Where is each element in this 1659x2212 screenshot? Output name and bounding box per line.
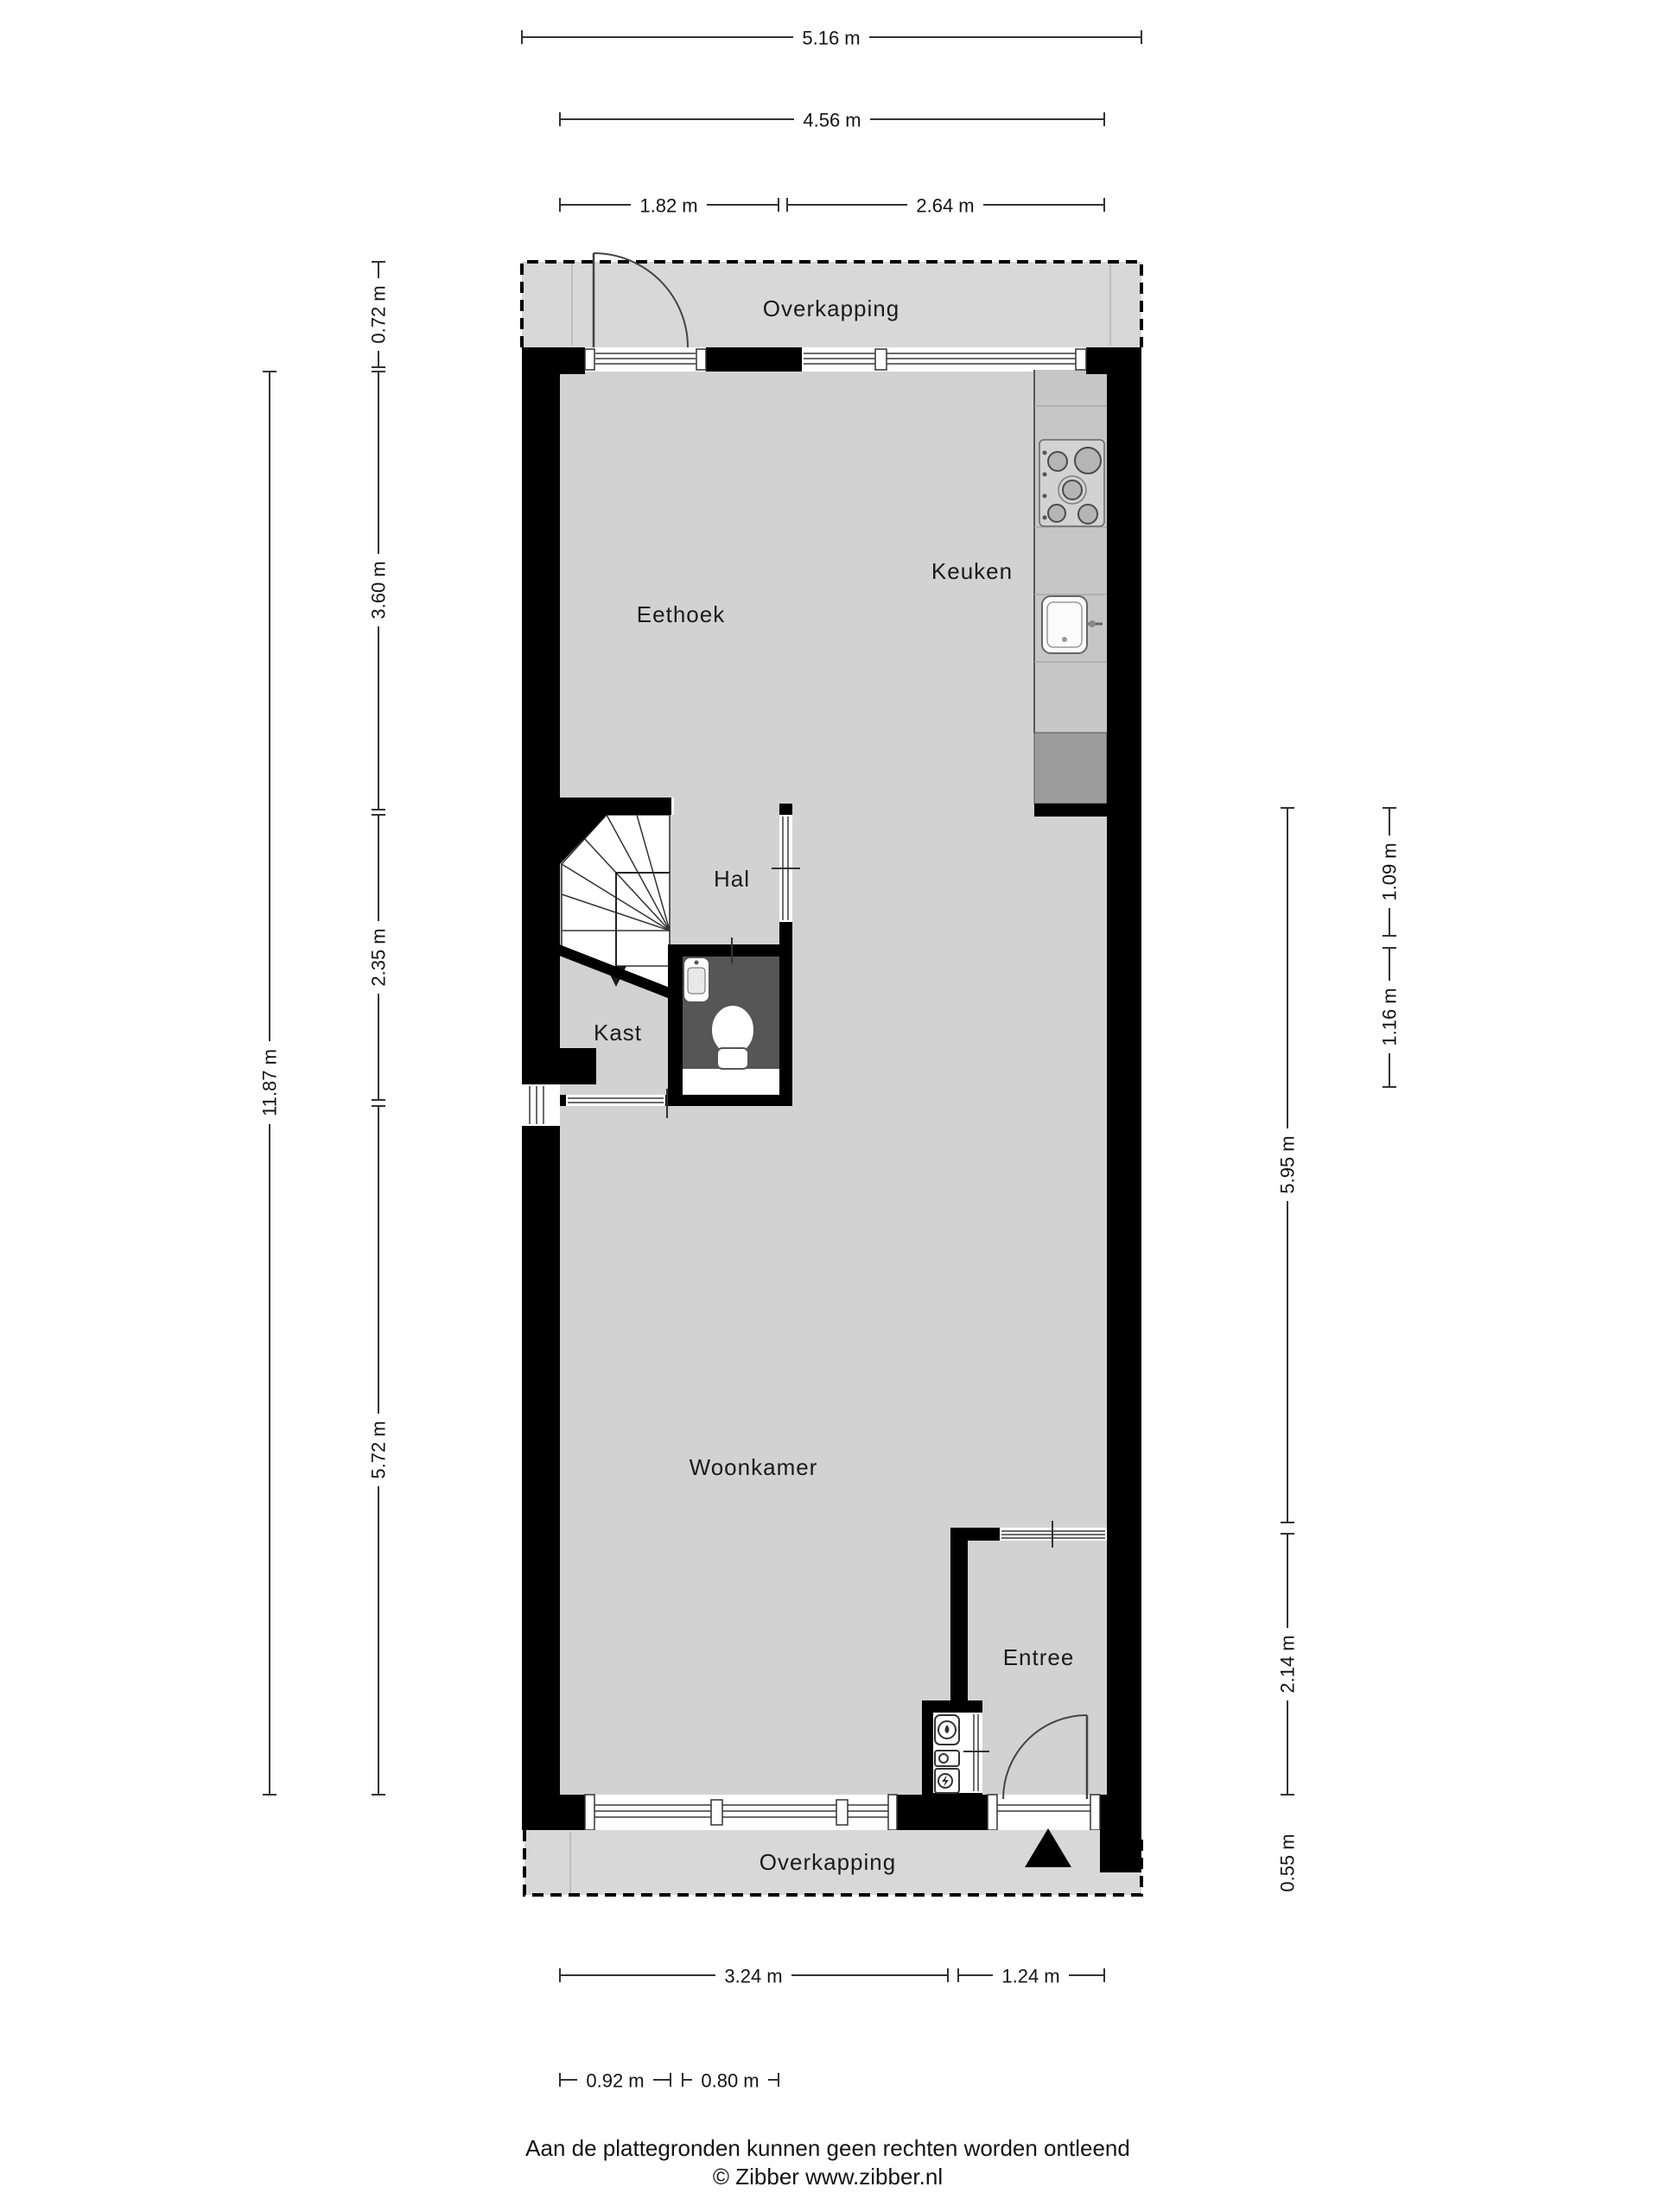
dimension-woonkamer-width: 3.24 m xyxy=(560,1964,948,1987)
window xyxy=(802,349,1086,370)
room-label-woonkamer: Woonkamer xyxy=(690,1454,818,1480)
counter-body xyxy=(1034,369,1107,733)
dimensions-top: 5.16 m 4.56 m 1.82 m 2.64 m xyxy=(522,26,1141,217)
dimension-label: 3.24 m xyxy=(724,1966,782,1987)
window xyxy=(585,349,706,370)
dimension-label: 1.82 m xyxy=(639,195,697,217)
room-label-hal: Hal xyxy=(714,866,750,892)
wall xyxy=(1107,347,1141,1872)
wall xyxy=(1034,804,1107,817)
dimension-label: 0.80 m xyxy=(701,2070,759,2092)
footer-disclaimer: Aan de plattegronden kunnen geen rechten… xyxy=(525,2135,1130,2161)
dimension-label: 1.24 m xyxy=(1001,1966,1059,1987)
dimension-label: 2.14 m xyxy=(1277,1635,1299,1693)
floorplan-canvas: Overkapping xyxy=(0,0,1659,2212)
wall xyxy=(522,1795,585,1830)
dimensions-left: 0.72 m 3.60 m 2.35 m 5.72 m xyxy=(257,262,390,1795)
dimension-label: 2.35 m xyxy=(368,928,390,986)
dimension-middle-depth: 2.35 m xyxy=(366,815,390,1100)
electric-meter-icon xyxy=(935,1751,959,1793)
dimension-inner-width: 4.56 m xyxy=(560,108,1104,131)
dimension-label: 0.72 m xyxy=(368,285,390,343)
wall xyxy=(668,944,683,1106)
dimensions-right: 1.09 m 1.16 m 5.95 m 2.14 m xyxy=(1275,808,1401,1899)
wall xyxy=(779,804,792,815)
meter-closet xyxy=(933,1713,989,1793)
wall xyxy=(706,347,802,372)
front-door-opening xyxy=(988,1795,1100,1830)
wall xyxy=(950,1528,1000,1541)
dimension-label: 0.92 m xyxy=(586,2070,644,2092)
dimension-woonkamer-depth: 5.72 m xyxy=(366,1106,390,1795)
dimension-label: 11.87 m xyxy=(259,1049,281,1116)
door-jamb xyxy=(671,798,674,815)
dimension-label: 5.16 m xyxy=(802,28,860,49)
dimension-canopy-bottom-depth: 0.55 m xyxy=(1275,1827,1299,1899)
washbasin-icon xyxy=(683,957,709,1002)
dimension-open-depth: 5.95 m xyxy=(1275,808,1299,1522)
room-label-canopy-top: Overkapping xyxy=(763,296,899,321)
footer-credit: © Zibber www.zibber.nl xyxy=(713,2164,943,2190)
dimension-label: 1.16 m xyxy=(1379,988,1401,1046)
dimension-right-segment: 2.64 m xyxy=(787,194,1104,217)
footer: Aan de plattegronden kunnen geen rechten… xyxy=(525,2135,1130,2190)
dimension-total-width: 5.16 m xyxy=(522,26,1141,49)
kitchen-counter xyxy=(1034,369,1107,804)
dimension-entree-depth: 2.14 m xyxy=(1275,1534,1299,1795)
wall xyxy=(897,1795,988,1830)
dimension-label: 4.56 m xyxy=(803,110,861,131)
dimension-canopy-depth: 0.72 m xyxy=(366,262,390,367)
dimension-eethoek-depth: 3.60 m xyxy=(366,372,390,810)
water-meter-icon xyxy=(935,1715,959,1745)
dimension-label: 3.60 m xyxy=(368,561,390,619)
dimension-toilet-depth: 1.16 m xyxy=(1377,948,1401,1087)
dimension-label: 5.72 m xyxy=(368,1421,390,1478)
dimension-upper-segment: 1.09 m xyxy=(1377,808,1401,936)
wall xyxy=(560,798,671,815)
room-label-kast: Kast xyxy=(594,1020,642,1046)
wall xyxy=(950,1528,968,1702)
dimension-label: 2.64 m xyxy=(916,195,974,217)
canopy-top: Overkapping xyxy=(522,262,1141,347)
toilet-room xyxy=(683,957,779,1095)
toilet-door-strip xyxy=(683,1069,779,1095)
dimension-total-depth: 11.87 m xyxy=(257,372,281,1795)
dimension-label: 0.55 m xyxy=(1277,1834,1299,1891)
room-label-eethoek: Eethoek xyxy=(637,601,725,627)
wall xyxy=(1100,1830,1141,1872)
stove-icon xyxy=(1039,440,1104,526)
dimension-kast-width: 0.92 m xyxy=(560,2069,671,2092)
toilet-icon xyxy=(711,1005,754,1069)
dimensions-bottom: 3.24 m 1.24 m 0.92 m 0.80 m xyxy=(560,1964,1104,2092)
window xyxy=(585,1795,897,1830)
dimension-left-segment: 1.82 m xyxy=(560,194,779,217)
dimension-entree-width: 1.24 m xyxy=(958,1964,1104,1987)
main-floor xyxy=(560,372,1107,1795)
canopy-bottom: Overkapping xyxy=(524,1828,1141,1895)
counter-appliance-block xyxy=(1034,733,1107,804)
dimension-toilet-width: 0.80 m xyxy=(683,2069,779,2092)
window xyxy=(522,1084,560,1126)
room-label-entree: Entree xyxy=(1003,1644,1075,1670)
room-label-keuken: Keuken xyxy=(931,558,1013,584)
dimension-label: 5.95 m xyxy=(1277,1135,1299,1193)
dimension-label: 1.09 m xyxy=(1379,842,1401,900)
wall xyxy=(560,1048,596,1084)
room-label-canopy-bottom: Overkapping xyxy=(760,1849,896,1875)
